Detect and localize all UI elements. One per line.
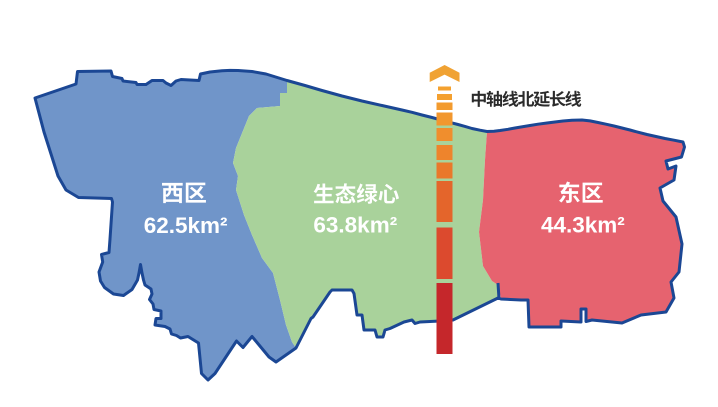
svg-text:63.8km²: 63.8km² bbox=[313, 213, 397, 238]
svg-text:44.3km²: 44.3km² bbox=[541, 213, 625, 238]
svg-text:62.5km²: 62.5km² bbox=[144, 213, 228, 238]
